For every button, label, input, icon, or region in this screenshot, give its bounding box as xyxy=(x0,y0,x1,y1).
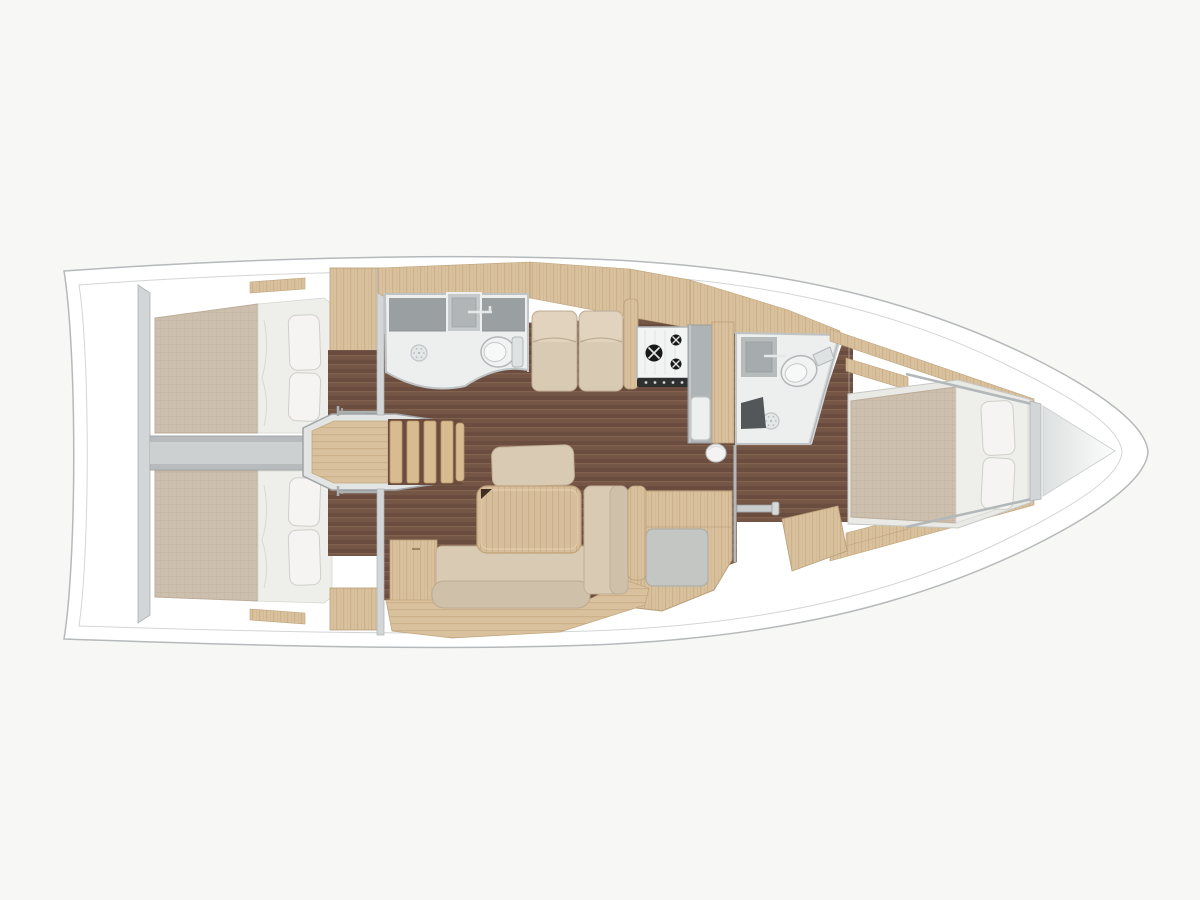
sofa-chaise-backrest xyxy=(610,486,628,594)
mid-bulkhead-bottom xyxy=(377,489,384,635)
aft-cabin-starboard-pillow-1 xyxy=(288,314,321,370)
stove-burner-small-2 xyxy=(671,359,682,370)
settee-armrest xyxy=(624,299,638,389)
sofa-side-cabinet xyxy=(390,540,437,606)
step-tread-2 xyxy=(407,421,419,483)
aft-cabin-starboard-pillow-2 xyxy=(288,372,321,421)
compression-post xyxy=(706,444,726,462)
companionway xyxy=(303,406,464,496)
ottoman-bench xyxy=(491,445,574,488)
nav-seat-cushion xyxy=(646,529,708,586)
berth-mattress xyxy=(851,387,956,523)
step-tread-3 xyxy=(424,421,436,483)
aft-cabin-port-pillow-1 xyxy=(288,477,321,526)
aft-head-toilet-tank xyxy=(512,337,523,367)
galley-tall-cabinet xyxy=(712,322,734,443)
companionway-landing xyxy=(312,421,388,483)
wardrobe-starboard xyxy=(330,268,378,356)
aft-head-toilet-seat xyxy=(484,343,506,362)
stove-burner-large xyxy=(646,345,663,362)
aft-cabin-port-pillow-2 xyxy=(288,529,321,585)
stove-burner-small-1 xyxy=(671,335,682,346)
aft-cabin-starboard-mattress xyxy=(155,304,258,433)
sofa-armrest xyxy=(628,486,646,580)
step-tread-5 xyxy=(456,423,464,481)
aft-cabin-port-floor xyxy=(328,486,378,556)
aft-bulkhead-wall xyxy=(138,285,150,623)
step-tread-4 xyxy=(441,421,453,483)
aft-cabin-starboard-floor xyxy=(328,350,378,416)
shower-drain xyxy=(411,345,427,361)
aft-cabin-port-mattress xyxy=(155,471,258,601)
forward-pillow-1 xyxy=(981,400,1016,456)
galley-sink xyxy=(691,397,710,440)
engine-compartment-hatch xyxy=(150,442,308,464)
forward-pillow-2 xyxy=(981,457,1016,510)
sofa-backrest-roll xyxy=(432,581,590,608)
wall-bracket-cap xyxy=(772,502,779,515)
saloon-table xyxy=(477,486,581,553)
yacht-layout-plan xyxy=(0,0,1200,900)
wall-bracket xyxy=(737,505,774,512)
forward-bulkhead xyxy=(1030,401,1041,501)
wardrobe-port xyxy=(330,588,378,630)
step-tread-1 xyxy=(390,421,402,483)
